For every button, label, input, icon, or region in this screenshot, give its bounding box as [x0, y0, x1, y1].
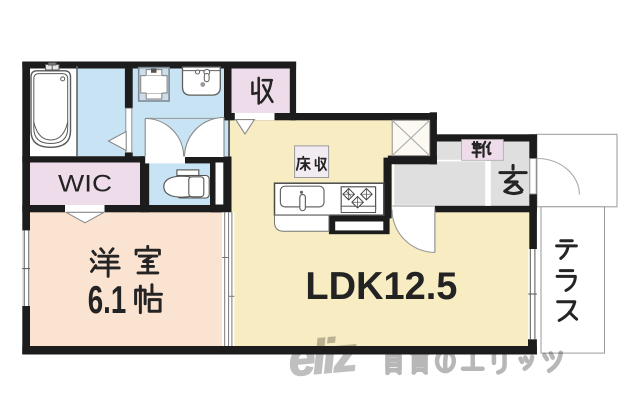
svg-text:LDK12.5: LDK12.5: [305, 265, 457, 308]
svg-text:WIC: WIC: [58, 170, 112, 197]
svg-text:6.1: 6.1: [88, 279, 127, 322]
svg-text:eliz: eliz: [286, 328, 359, 387]
